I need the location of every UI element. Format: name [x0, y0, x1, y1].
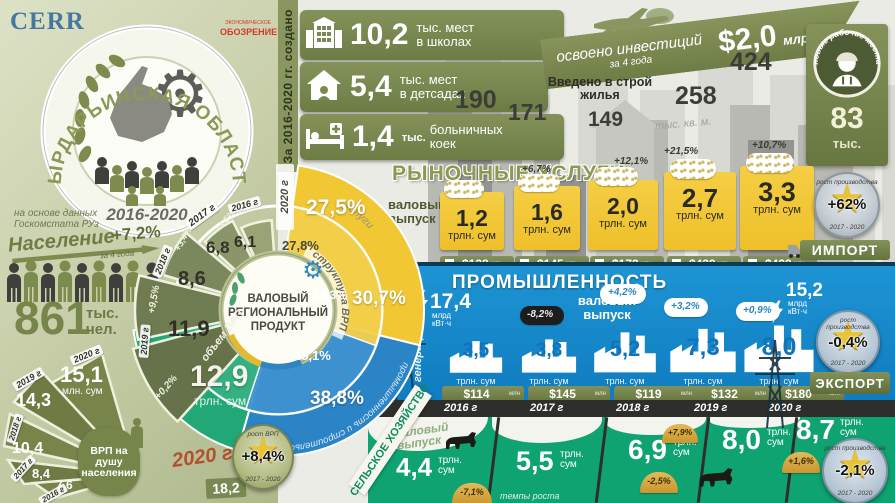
- agri-2016-growth: -7,1%: [460, 487, 484, 497]
- industry-2017-growth: -8,2%: [527, 309, 553, 320]
- grp-medal-top: рост ВРП: [234, 431, 292, 438]
- kindergarten-icon: [304, 68, 344, 106]
- agri-2020-u2: сум: [840, 427, 857, 438]
- schools-label-1: тыс. мест: [416, 20, 474, 35]
- market-2017-growth: +6,7%: [522, 164, 551, 175]
- agri-2020-growth: +1,6%: [788, 456, 814, 466]
- market-2019-growth: +21,5%: [664, 146, 698, 157]
- export-2019-value: $132: [711, 387, 738, 401]
- per-capita-2020-unit: млн. сум: [62, 386, 103, 397]
- housing-2020-value: 424: [730, 48, 772, 77]
- industry-growth-medal: ★ рост производства -0,4% 2017 - 2020: [816, 310, 880, 374]
- agri-2017-value: 5,5: [516, 446, 554, 477]
- market-2019-box: +21,5% 2,7 трлн. сум: [664, 172, 736, 250]
- market-2018-growth: +12,1%: [614, 156, 648, 167]
- industry-2017-unit: трлн. сум: [520, 376, 578, 386]
- market-2018-box: +12,1% 2,0 трлн. сум: [588, 180, 658, 250]
- agri-2019-growth: +7,9%: [668, 427, 692, 437]
- factory-2018: 5,2 трлн. сум: [592, 326, 658, 374]
- year-2018: 2018 г: [616, 402, 649, 414]
- per-capita-2017-value: 8,4: [32, 466, 50, 481]
- market-2019-value: 2,7: [664, 186, 736, 210]
- industry-2016-unit: трлн. сум: [448, 376, 504, 386]
- export-2018-value: $119: [636, 387, 662, 401]
- market-medal-top: рост производства: [816, 179, 878, 186]
- cow-icon: [440, 430, 478, 454]
- agri-2019-u2: сум: [767, 437, 784, 448]
- agri-2018-u2: сум: [673, 447, 690, 458]
- worker-icon: новые рабочие места: [811, 28, 883, 100]
- agri-2017-u2: сум: [560, 459, 577, 470]
- market-2020-unit: трлн. сум: [740, 204, 814, 216]
- grp-2017-value: 6,8: [206, 238, 230, 258]
- market-2020-growth: +10,7%: [752, 140, 786, 151]
- source-line1: на основе данных: [14, 208, 97, 219]
- per-capita-2020-value: 15,1: [60, 362, 103, 388]
- housing-2016-value: 190: [455, 86, 497, 115]
- agri-rate-label: темпы роста: [500, 491, 560, 501]
- agri-medal-bottom: 2017 - 2020: [824, 490, 886, 497]
- industry-2016-value: 3,5: [448, 340, 504, 362]
- housing-2018-value: 149: [588, 108, 623, 132]
- industry-inner-pct: 24,3%: [313, 288, 347, 302]
- hospital-value: 1,4: [352, 120, 394, 154]
- truck-cab-icon: [786, 242, 802, 258]
- power-pylon-icon: [745, 328, 805, 428]
- industry-medal-bottom: 2017 - 2020: [818, 360, 878, 367]
- grp-center-3: ПРОДУКТ: [251, 321, 305, 333]
- per-capita-2016-value: 7,6: [56, 478, 73, 492]
- grp-2019-value: 11,9: [168, 316, 210, 342]
- schools-stat-bar: 10,2 тыс. мест в школах: [300, 10, 564, 60]
- market-growth-medal: ★ рост производства +62% 2017 - 2020: [814, 172, 880, 238]
- new-jobs-panel: новые рабочие места 83 тыс.: [806, 24, 888, 166]
- market-2017-value: 1,6: [514, 200, 580, 224]
- schools-label-2: в школах: [416, 34, 471, 49]
- industry-2019-unit: трлн. сум: [668, 376, 738, 386]
- industry-output-label-1: валовый: [578, 293, 636, 308]
- gear-icon: ⚙: [302, 257, 324, 284]
- industry-2020-growth: +0,9%: [743, 305, 772, 316]
- consumption-unit-2: кВт·ч: [788, 307, 807, 316]
- industry-medal-value: -0,4%: [818, 334, 878, 351]
- export-unit: млн: [681, 391, 692, 397]
- created-strip: За 2016-2020 гг. создано: [278, 0, 298, 172]
- structure-ring-year: 2020 г: [279, 180, 291, 213]
- export-label: ЭКСПОРТ: [815, 376, 884, 391]
- cow-icon: [692, 466, 736, 492]
- market-2017-unit: трлн. сум: [514, 224, 580, 236]
- market-2020-value: 3,3: [740, 180, 814, 204]
- housing-label-1: Введено в строй: [548, 75, 652, 89]
- market-2016-box: 1,2 трлн. сум: [440, 192, 504, 250]
- hospital-unit: тыс.: [402, 132, 426, 144]
- grp-2018-value: 8,6: [178, 268, 206, 291]
- agri-outer-pct: 38,8%: [310, 388, 364, 410]
- agri-medal-top: рост производства: [824, 445, 886, 452]
- housing-2017-value: 171: [508, 99, 546, 126]
- hospital-label-1: больничных: [430, 122, 503, 137]
- services-inner-pct: 27,8%: [282, 238, 319, 253]
- import-truck: ИМПОРТ: [800, 240, 890, 260]
- industry-2017-value: 3,8: [520, 340, 578, 362]
- market-2019-unit: трлн. сум: [664, 210, 736, 222]
- year-2017: 2017 г: [530, 402, 563, 414]
- import-label: ИМПОРТ: [812, 242, 878, 258]
- per-capita-2019-value: 14,3: [16, 390, 51, 411]
- factory-2017: 3,8 трлн. сум: [520, 334, 578, 374]
- agri-medal-value: -2,1%: [824, 462, 886, 479]
- lightning-icon: [770, 300, 783, 324]
- export-truck: ЭКСПОРТ: [810, 372, 890, 394]
- infographic-syrdarya-region: 10,2 тыс. мест в школах 5,4 тыс. мест в …: [0, 0, 895, 503]
- kindergarten-label-1: тыс. мест: [400, 72, 458, 87]
- industry-2018-value: 5,2: [592, 336, 658, 362]
- agriculture-growth-medal: ★ рост производства -2,1% 2017 - 2020: [822, 438, 888, 503]
- industry-2018-unit: трлн. сум: [592, 376, 658, 386]
- hospital-bed-icon: [304, 121, 346, 153]
- grp-growth-medal: ★ рост ВРП +8,4% 2017 - 2020: [232, 424, 294, 490]
- market-2016-unit: трлн. сум: [440, 230, 504, 242]
- housing-label-2: жилья: [580, 88, 619, 102]
- grp-medal-value: +8,4%: [234, 448, 292, 465]
- hospital-label-2: коек: [430, 136, 456, 151]
- grp-medal-bottom: 2017 - 2020: [234, 476, 292, 483]
- agri-inner-pct: 45,1%: [294, 348, 331, 363]
- housing-2019-value: 258: [675, 82, 717, 111]
- export-2017-value: $145: [549, 387, 576, 401]
- export-unit: млн: [595, 391, 606, 397]
- export-2016-value: $114: [464, 387, 490, 401]
- market-2020-box: +10,7% 3,3 трлн. сум: [740, 166, 814, 250]
- factory-2019: 7,3 трлн. сум: [668, 322, 738, 374]
- market-2016-value: 1,2: [440, 206, 504, 230]
- market-2018-unit: трлн. сум: [588, 218, 658, 230]
- year-2019: 2019 г: [694, 402, 727, 414]
- grp-2016-value: 6,1: [234, 234, 256, 252]
- agri-2019-value: 8,0: [722, 424, 761, 456]
- market-medal-bottom: 2017 - 2020: [816, 224, 878, 231]
- kindergarten-value: 5,4: [350, 70, 392, 104]
- grp-2020-unit: трлн. сум: [194, 394, 246, 408]
- industry-medal-top: рост производства: [818, 317, 878, 331]
- market-2018-value: 2,0: [588, 194, 658, 218]
- agri-2018-growth: -2,5%: [647, 476, 671, 486]
- schools-value: 10,2: [350, 18, 408, 52]
- jobs-unit: тыс.: [806, 136, 888, 151]
- export-unit: млн: [509, 391, 520, 397]
- grp-center-1: ВАЛОВЫЙ: [247, 292, 308, 305]
- school-icon: [304, 16, 344, 54]
- market-medal-value: +62%: [816, 196, 878, 213]
- factory-2016: 3,5 трлн. сум: [448, 336, 504, 374]
- jobs-value: 83: [806, 102, 888, 136]
- industry-2019-growth: +3,2%: [671, 301, 700, 312]
- industry-2019-value: 7,3: [668, 334, 738, 362]
- grp-2020-value: 12,9: [190, 360, 248, 394]
- industry-outer-pct: 30,7%: [352, 288, 406, 310]
- year-2016: 2016 г: [444, 402, 477, 414]
- population-value: 861: [14, 296, 91, 340]
- market-2017-box: +6,7% 1,6 трлн. сум: [514, 186, 580, 250]
- industry-output-label-2: выпуск: [583, 307, 631, 322]
- services-outer-pct: 27,5%: [306, 196, 366, 220]
- created-label: За 2016-2020 гг. создано: [281, 9, 295, 163]
